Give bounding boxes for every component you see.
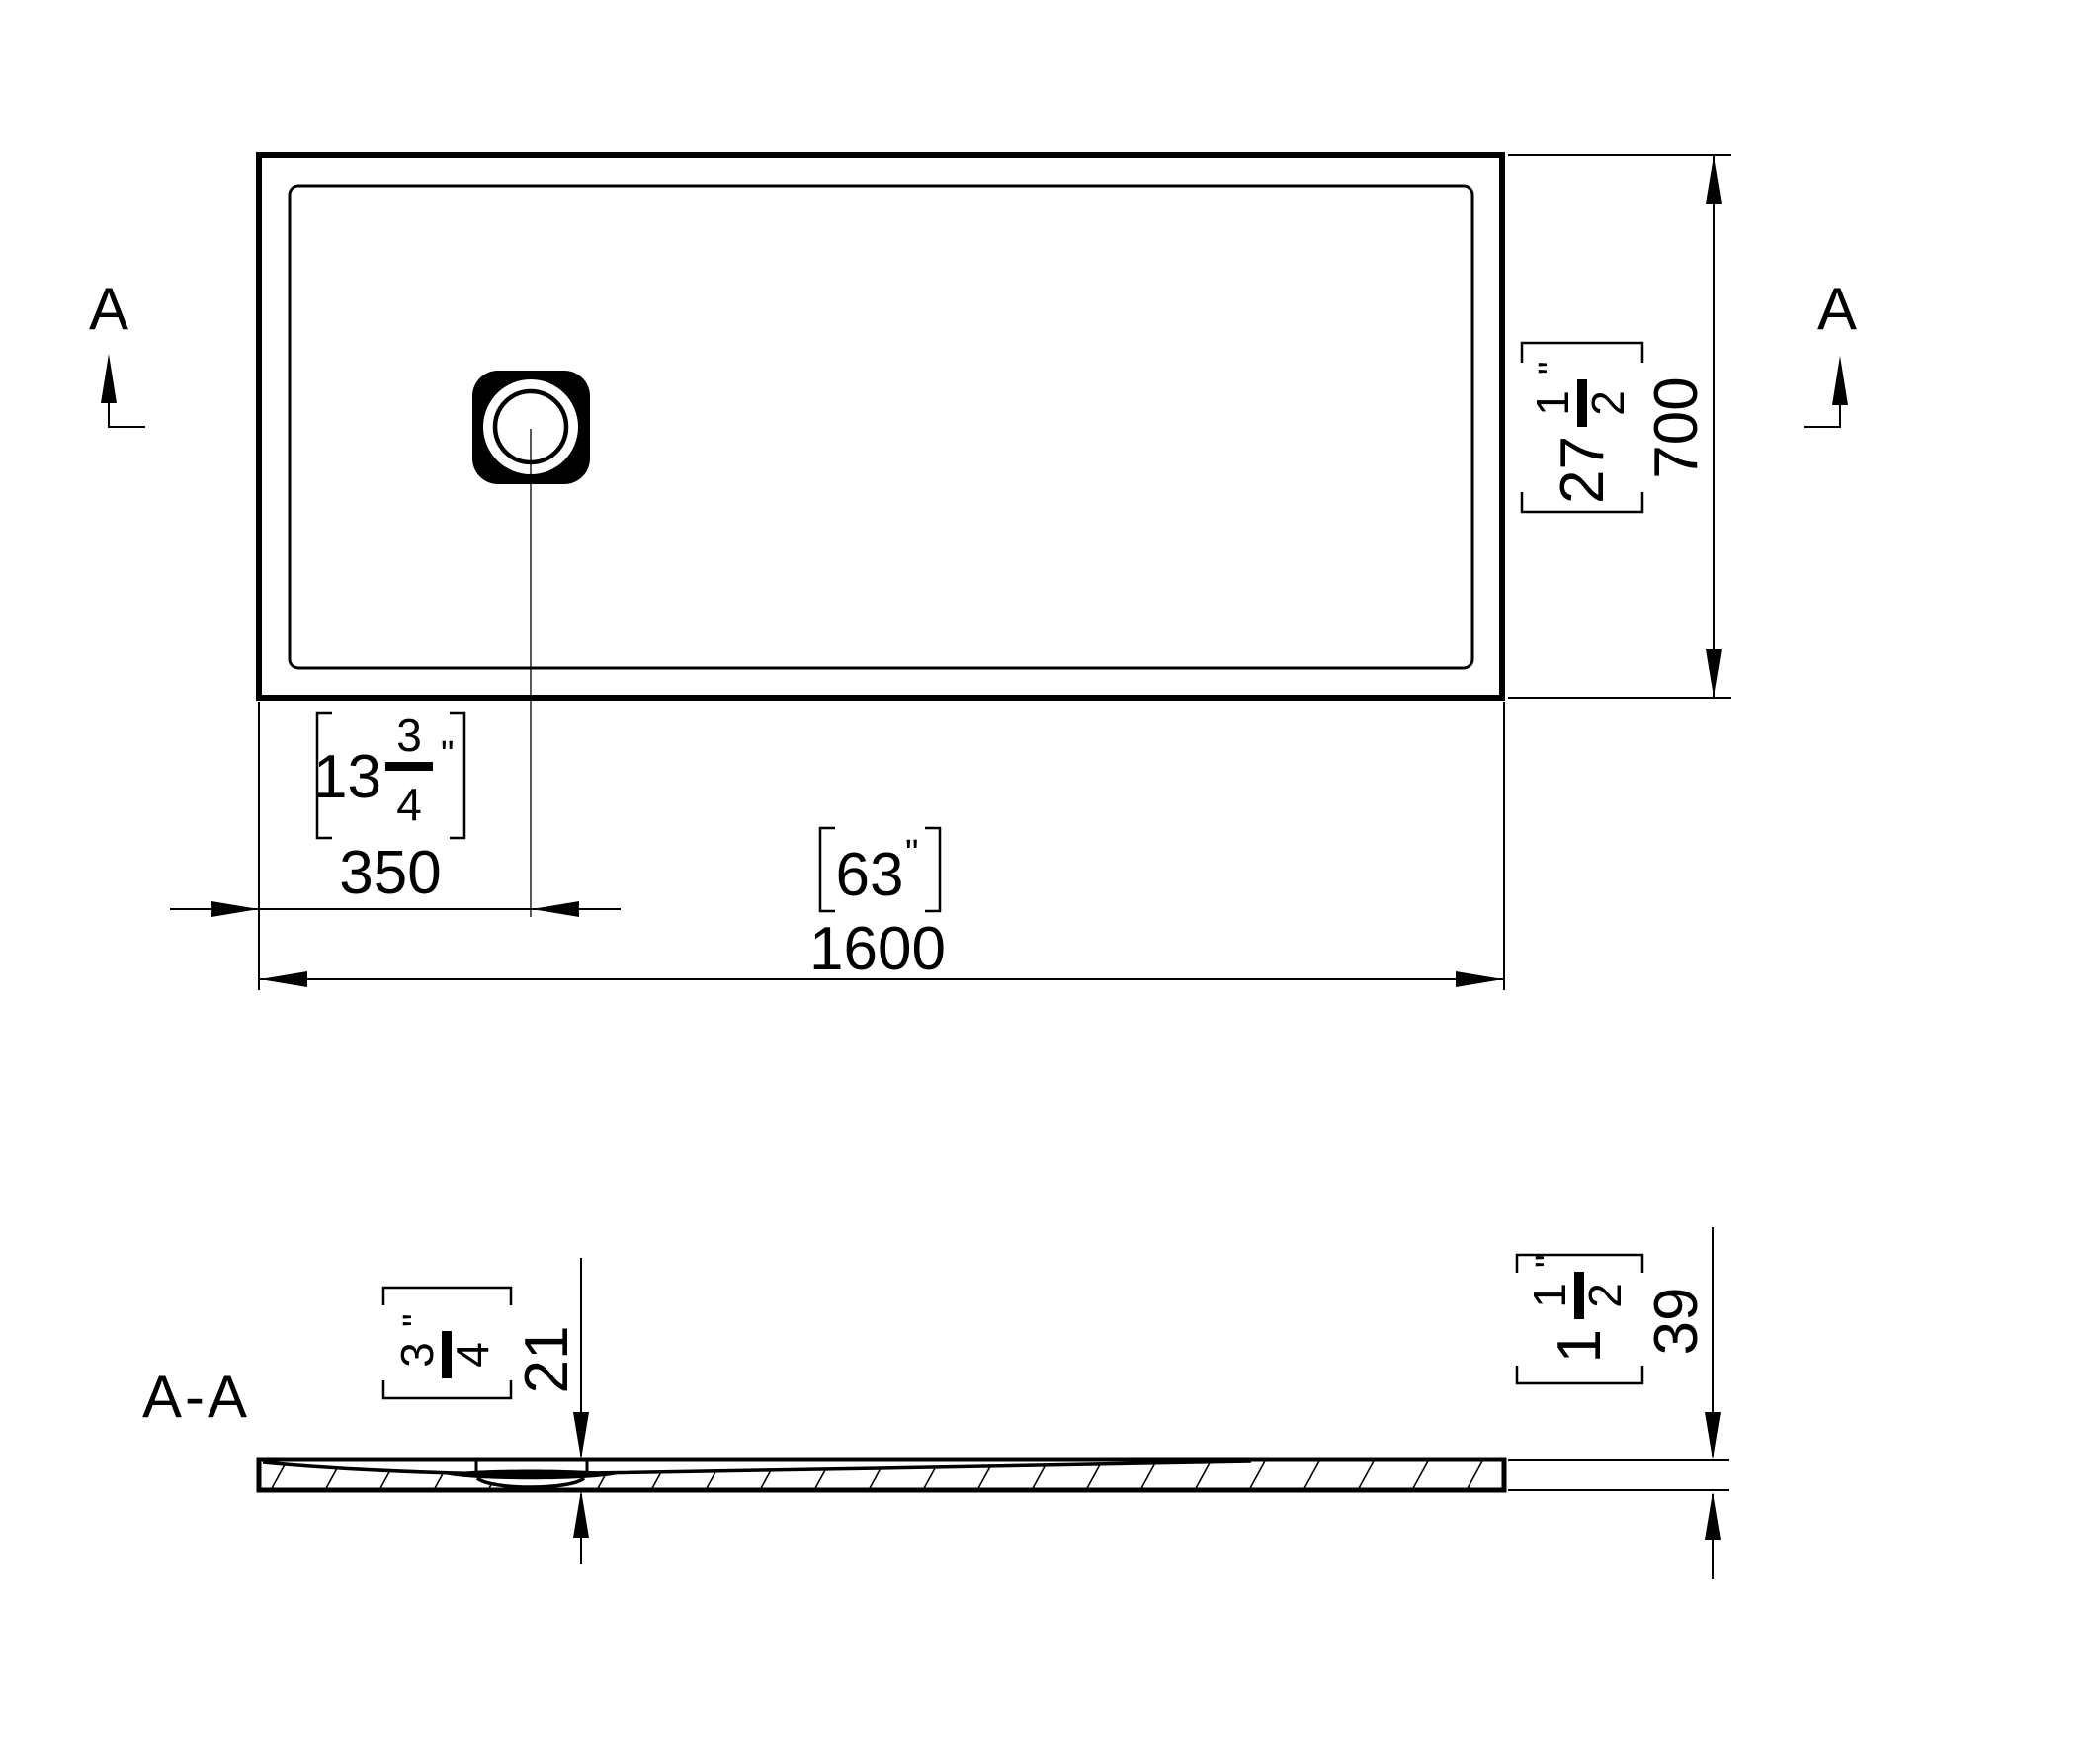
cut-marker-left: A (89, 276, 145, 427)
dim-drain-thickness: 3 4 " 21 (383, 1258, 589, 1564)
dim-drain-thickness-imperial-den: 4 (447, 1342, 498, 1368)
dim-drain-offset-metric-value: 350 (339, 839, 441, 907)
tray-outer-edge (259, 155, 1502, 698)
cut-marker-right-line (1804, 405, 1840, 427)
dim-drain-thickness-arrow-down (573, 1412, 589, 1459)
dim-depth: 27 1 2 " 700 (1508, 155, 1731, 698)
dim-depth-inch-mark: " (1532, 362, 1573, 375)
dim-drain-offset-bracket-right (450, 713, 464, 838)
dim-drain-thickness-metric-value: 21 (513, 1326, 581, 1394)
top-view (259, 155, 1502, 917)
dim-edge-thickness-metric-label: 39 (1642, 1288, 1711, 1356)
dim-drain-thickness-imperial-label: 3 4 " (391, 1314, 498, 1379)
section-drain-bowl (477, 1478, 584, 1487)
dim-drain-offset-arrow-left (211, 901, 259, 917)
dim-width-bracket-left (820, 828, 835, 911)
section-material-hatch (259, 1461, 1502, 1488)
section-view: A-A (142, 1364, 1504, 1490)
dim-drain-offset-imperial-den: 4 (396, 779, 422, 830)
dim-edge-thickness-imperial-whole: 1 (1546, 1329, 1614, 1363)
dim-width-imperial-whole: 63 (836, 841, 904, 909)
dim-drain-offset: 13 3 4 " 350 (170, 709, 621, 917)
section-title: A-A (142, 1364, 250, 1430)
dim-depth-imperial-label: 27 1 2 " (1527, 362, 1634, 504)
dim-drain-offset-fraction-bar (385, 762, 433, 771)
dim-drain-thickness-arrow-up (573, 1490, 589, 1538)
dim-drain-offset-inch-mark: " (441, 734, 455, 776)
dim-edge-thickness-bracket-bottom (1517, 1366, 1642, 1383)
dim-edge-thickness-arrow-down (1705, 1412, 1721, 1459)
dim-drain-thickness-metric-label: 21 (513, 1326, 581, 1394)
dim-edge-thickness-imperial-den: 2 (1579, 1283, 1631, 1308)
cut-marker-left-label: A (89, 276, 128, 342)
dim-drain-offset-arrow-right (532, 901, 579, 917)
dim-drain-offset-imperial-num: 3 (396, 709, 422, 761)
dim-depth-metric-label: 700 (1642, 376, 1711, 478)
cut-marker-right: A (1804, 276, 1857, 427)
dim-edge-thickness-arrow-up (1705, 1492, 1721, 1540)
dim-edge-thickness-imperial-label: 1 1 2 " (1524, 1255, 1631, 1364)
dim-drain-thickness-bracket-bottom (383, 1380, 511, 1398)
dim-depth-imperial-num: 1 (1527, 390, 1578, 416)
cut-marker-left-arrow-icon (101, 354, 117, 403)
cut-marker-right-arrow-icon (1832, 356, 1848, 405)
dim-depth-bracket-top (1522, 343, 1642, 363)
dim-width-arrow-left (260, 971, 307, 987)
dim-drain-thickness-bracket-top (383, 1288, 511, 1305)
cut-marker-right-label: A (1817, 276, 1857, 342)
technical-drawing-shower-tray: A A 27 1 2 " 700 13 3 (0, 0, 2100, 1750)
dim-edge-thickness-imperial-num: 1 (1524, 1283, 1575, 1308)
dim-drain-offset-imperial-whole: 13 (313, 743, 381, 811)
dim-edge-thickness-metric-value: 39 (1642, 1288, 1711, 1356)
dim-depth-metric-value: 700 (1642, 376, 1711, 478)
dim-width-bracket-right (925, 828, 940, 911)
dim-width-metric-value: 1600 (809, 915, 946, 983)
dim-edge-thickness: 1 1 2 " 39 (1508, 1227, 1729, 1579)
dim-drain-thickness-inch-mark: " (396, 1314, 438, 1328)
cut-marker-left-line (109, 403, 145, 427)
dim-depth-arrow-bottom (1706, 649, 1722, 697)
dim-drain-thickness-imperial-num: 3 (391, 1342, 443, 1368)
dim-width-inch-mark: " (905, 833, 919, 875)
dim-depth-imperial-den: 2 (1582, 390, 1634, 416)
dim-width-arrow-right (1456, 971, 1503, 987)
dim-depth-arrow-top (1706, 156, 1722, 204)
dim-depth-imperial-whole: 27 (1549, 436, 1617, 504)
dim-edge-thickness-inch-mark: " (1529, 1255, 1570, 1269)
